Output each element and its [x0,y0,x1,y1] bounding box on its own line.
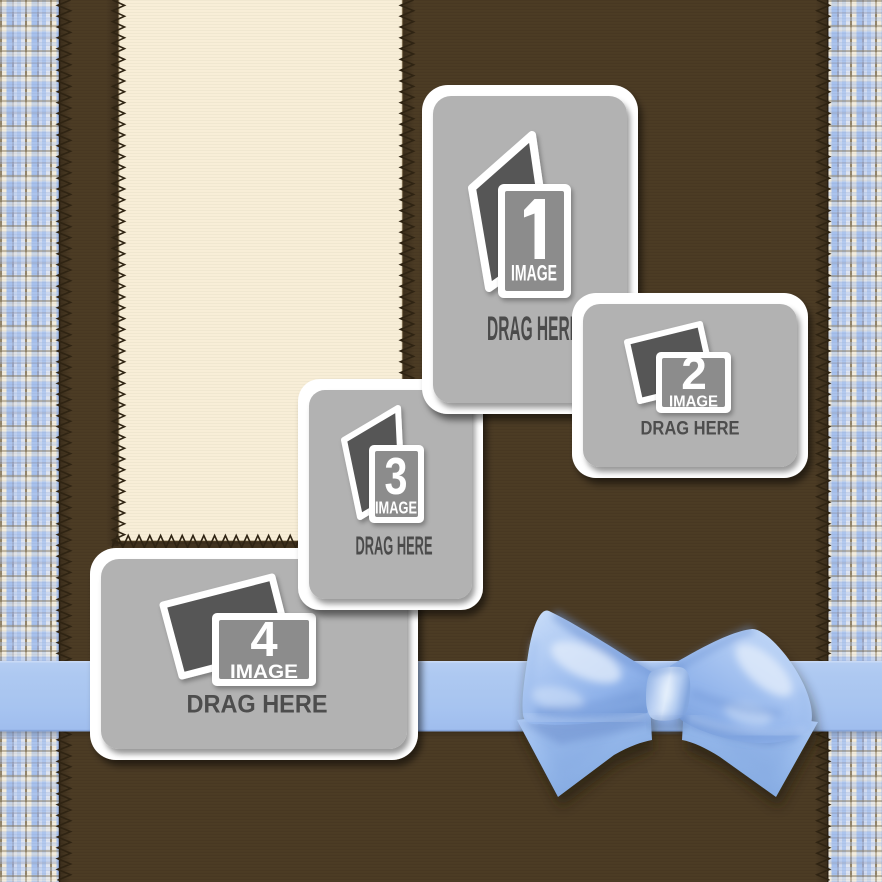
svg-text:2: 2 [681,347,707,399]
svg-text:IMAGE: IMAGE [669,394,718,411]
svg-text:DRAG HERE: DRAG HERE [487,310,580,348]
svg-text:DRAG HERE: DRAG HERE [641,419,740,440]
svg-text:DRAG HERE: DRAG HERE [187,691,328,719]
svg-text:DRAG HERE: DRAG HERE [356,533,433,561]
svg-text:IMAGE: IMAGE [375,498,417,518]
svg-text:IMAGE: IMAGE [511,261,557,286]
svg-text:IMAGE: IMAGE [230,661,298,683]
svg-text:4: 4 [250,613,277,667]
